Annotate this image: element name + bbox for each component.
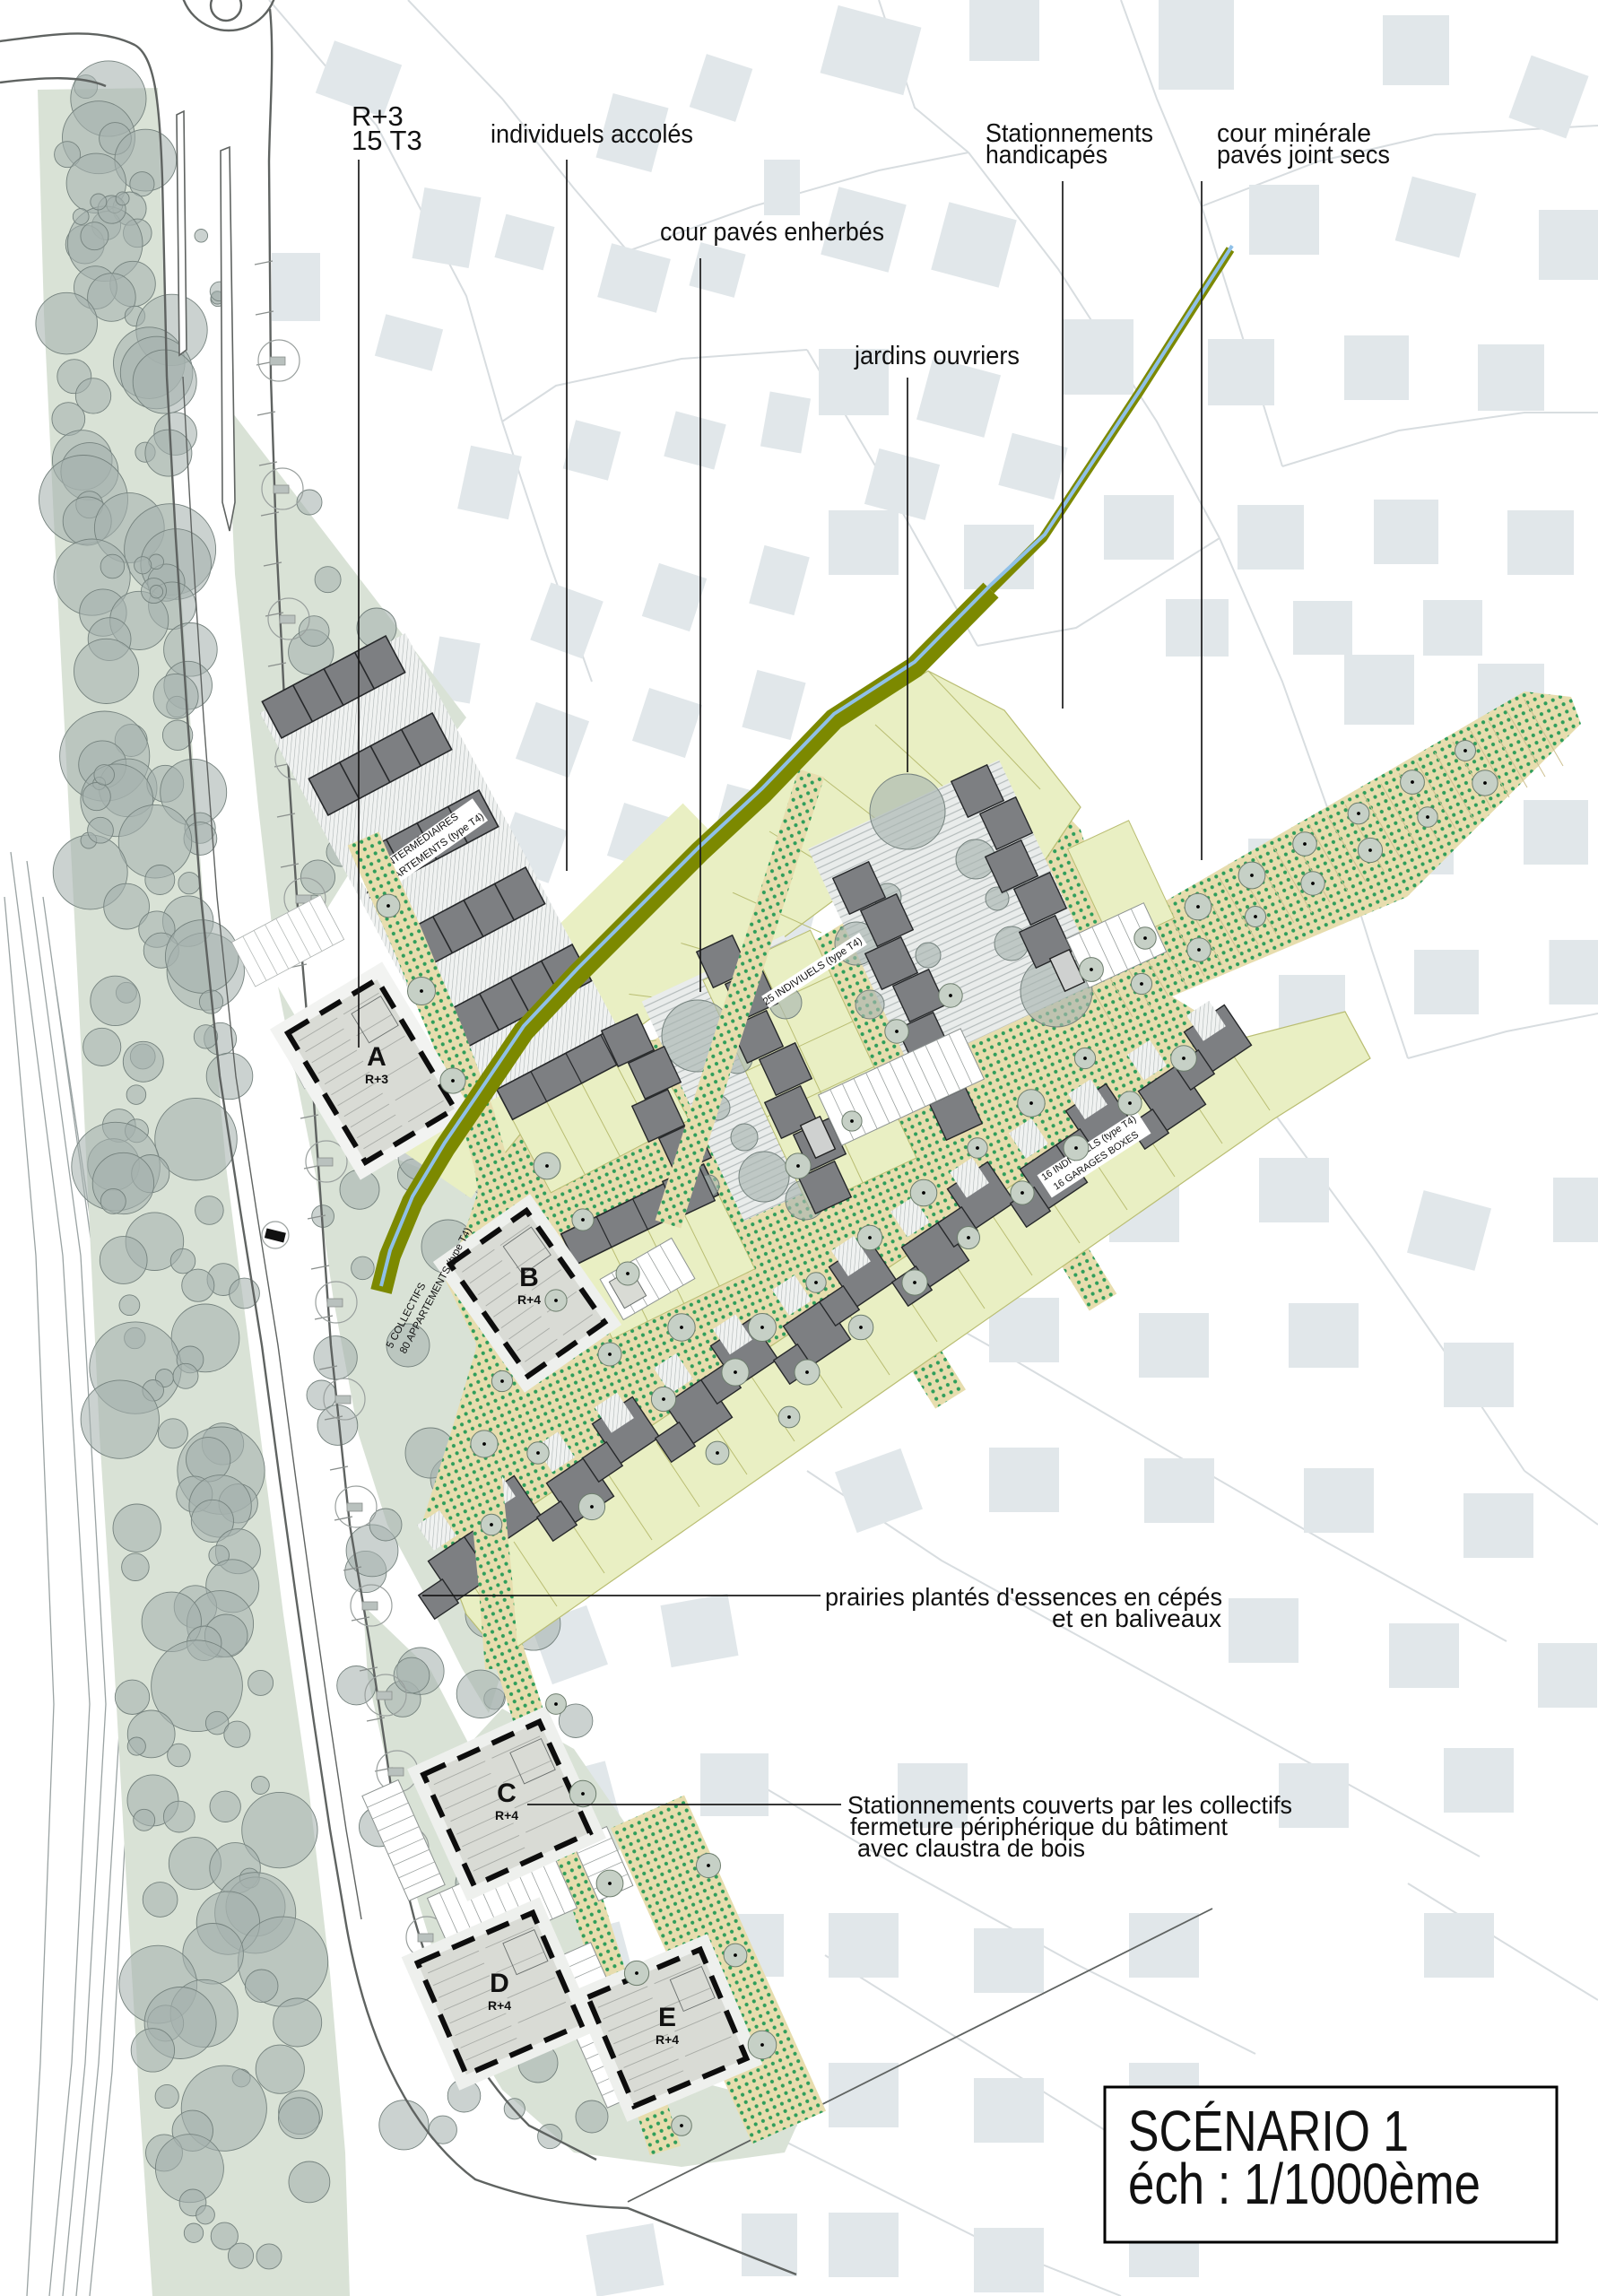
svg-text:D: D (490, 1969, 509, 1998)
svg-text:E: E (658, 2003, 676, 2032)
svg-text:et en baliveaux: et en baliveaux (1052, 1605, 1221, 1632)
svg-text:B: B (519, 1263, 539, 1292)
svg-text:R+3: R+3 (365, 1072, 388, 1086)
svg-text:C: C (497, 1779, 517, 1808)
svg-text:cour pavés enherbés: cour pavés enherbés (660, 218, 884, 247)
svg-text:A: A (367, 1042, 386, 1072)
svg-text:R+4: R+4 (517, 1292, 541, 1307)
svg-text:R+4: R+4 (656, 2032, 679, 2047)
svg-text:éch : 1/1000ème: éch : 1/1000ème (1128, 2152, 1481, 2216)
svg-text:R+4: R+4 (495, 1808, 518, 1822)
svg-text:avec claustra de bois: avec claustra de bois (857, 1834, 1085, 1862)
svg-text:handicapés: handicapés (986, 141, 1107, 170)
svg-text:jardins ouvriers: jardins ouvriers (854, 342, 1020, 370)
svg-text:individuels accolés: individuels accolés (491, 120, 693, 149)
svg-text:R+4: R+4 (488, 1998, 511, 2013)
svg-text:15 T3: 15 T3 (352, 125, 422, 156)
svg-text:pavés joint secs: pavés joint secs (1217, 141, 1390, 170)
